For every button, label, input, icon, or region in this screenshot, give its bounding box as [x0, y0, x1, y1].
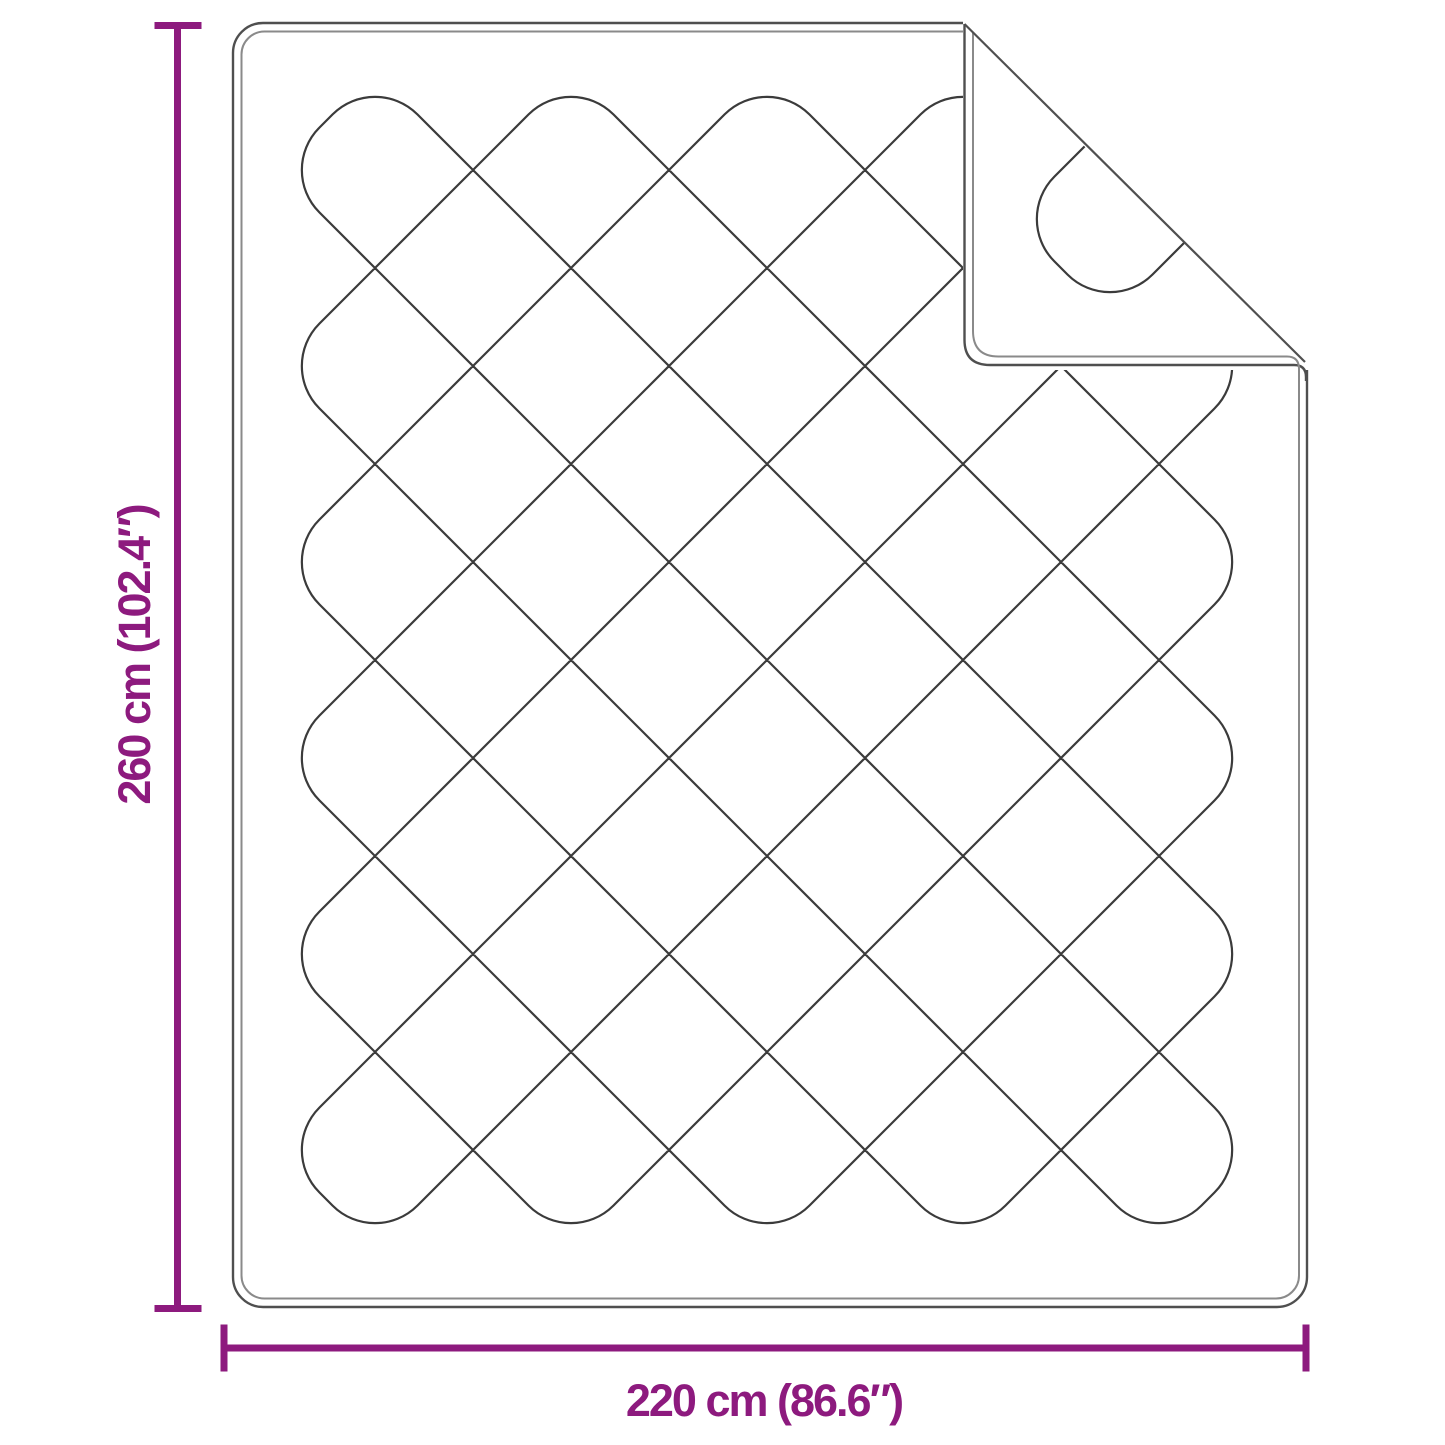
height-dimension-label: 260 cm (102.4″) — [109, 505, 160, 804]
width-dimension-label: 220 cm (86.6″) — [626, 1375, 902, 1426]
blanket-diagram-canvas: 260 cm (102.4″) 220 cm (86.6″) — [0, 0, 1445, 1445]
width-dimension-line — [224, 1325, 1306, 1372]
dimension-diagram: 260 cm (102.4″) 220 cm (86.6″) — [0, 0, 1445, 1445]
height-dimension-line — [155, 26, 202, 1309]
